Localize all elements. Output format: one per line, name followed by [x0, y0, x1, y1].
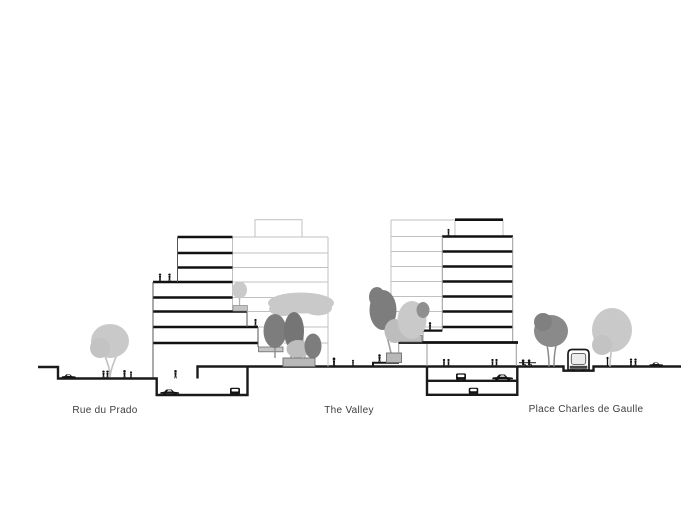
person-icon: [447, 229, 449, 236]
label-the-valley: The Valley: [324, 405, 374, 416]
label-place-charles-de-gaulle: Place Charles de Gaulle: [529, 404, 644, 415]
left-street-ground-line: [38, 367, 248, 396]
car-icon: [469, 388, 479, 395]
car-icon: [230, 388, 240, 395]
person-icon: [333, 358, 336, 367]
label-rue-du-prado: Rue du Prado: [72, 405, 137, 416]
tram-icon: [568, 350, 589, 372]
valley-tree-cluster-icon: [264, 293, 335, 367]
person-icon: [174, 370, 177, 378]
person-icon: [443, 359, 445, 367]
person-icon: [630, 358, 632, 366]
person-icon: [495, 359, 497, 367]
plaza-light-tree-icon: [592, 308, 632, 367]
right-building: [391, 220, 518, 366]
right-building-floor-slabs: [442, 237, 513, 328]
person-icon: [123, 370, 126, 378]
person-icon: [447, 359, 449, 367]
terrace-step-slab: [259, 347, 284, 352]
plaza-ground-line: [198, 367, 682, 379]
podium-step-planter: [387, 353, 402, 363]
person-icon: [378, 354, 381, 362]
person-icon: [634, 358, 636, 366]
terrace-tree-icon: [232, 282, 248, 312]
car-icon: [456, 373, 466, 380]
right-building-edges: [399, 237, 517, 367]
person-icon: [106, 370, 108, 378]
street-tree-icon: [90, 324, 129, 377]
person-icon: [491, 359, 493, 367]
person-icon: [168, 273, 170, 281]
person-icon: [102, 370, 104, 378]
people: [102, 229, 636, 379]
valley-planter: [283, 358, 315, 367]
podium-tree-cluster-icon: [369, 287, 430, 363]
person-icon: [159, 273, 161, 281]
plaza-dark-tree-icon: [534, 313, 568, 367]
person-icon: [254, 319, 256, 327]
section-drawing: Rue du Prado The Valley Place Charles de…: [0, 0, 700, 506]
left-rooftop-box: [255, 220, 302, 237]
architectural-section-page: Rue du Prado The Valley Place Charles de…: [0, 0, 700, 506]
person-icon: [429, 322, 431, 330]
signal-pole-icon: [606, 357, 608, 367]
section-labels: Rue du Prado The Valley Place Charles de…: [72, 404, 643, 416]
